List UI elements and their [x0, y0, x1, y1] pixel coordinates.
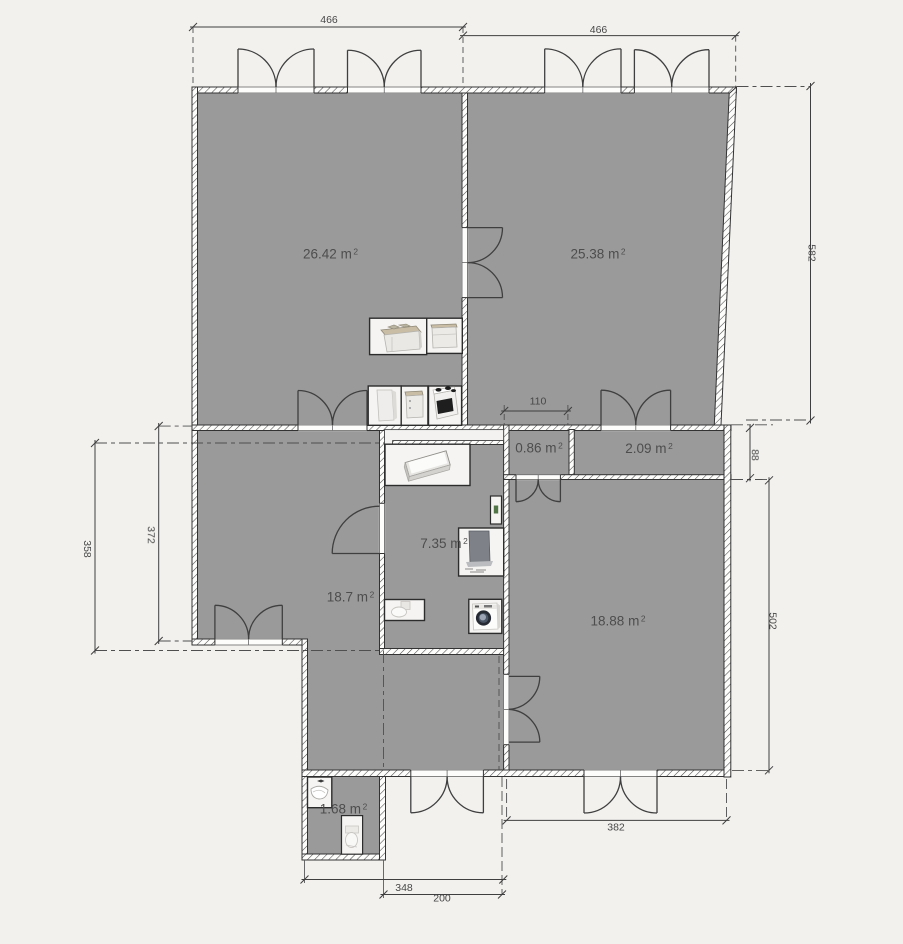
svg-text:26.42 m2: 26.42 m2	[303, 246, 358, 261]
svg-text:582: 582	[806, 244, 818, 262]
svg-text:25.38 m2: 25.38 m2	[571, 246, 626, 261]
svg-text:502: 502	[767, 612, 779, 630]
svg-text:200: 200	[433, 893, 451, 905]
svg-text:358: 358	[81, 540, 93, 558]
svg-text:7.35 m2: 7.35 m2	[420, 536, 468, 551]
svg-text:88: 88	[749, 449, 761, 461]
svg-text:2.09 m2: 2.09 m2	[625, 441, 673, 456]
svg-text:18.88 m2: 18.88 m2	[591, 613, 646, 628]
svg-text:466: 466	[590, 24, 608, 36]
svg-text:466: 466	[320, 14, 338, 26]
svg-text:1.68 m2: 1.68 m2	[320, 801, 368, 816]
svg-text:348: 348	[395, 882, 413, 894]
svg-text:0.86 m2: 0.86 m2	[515, 440, 563, 455]
svg-text:110: 110	[530, 396, 547, 408]
svg-text:372: 372	[145, 526, 157, 544]
svg-text:382: 382	[607, 822, 625, 834]
svg-text:18.7 m2: 18.7 m2	[327, 589, 375, 604]
